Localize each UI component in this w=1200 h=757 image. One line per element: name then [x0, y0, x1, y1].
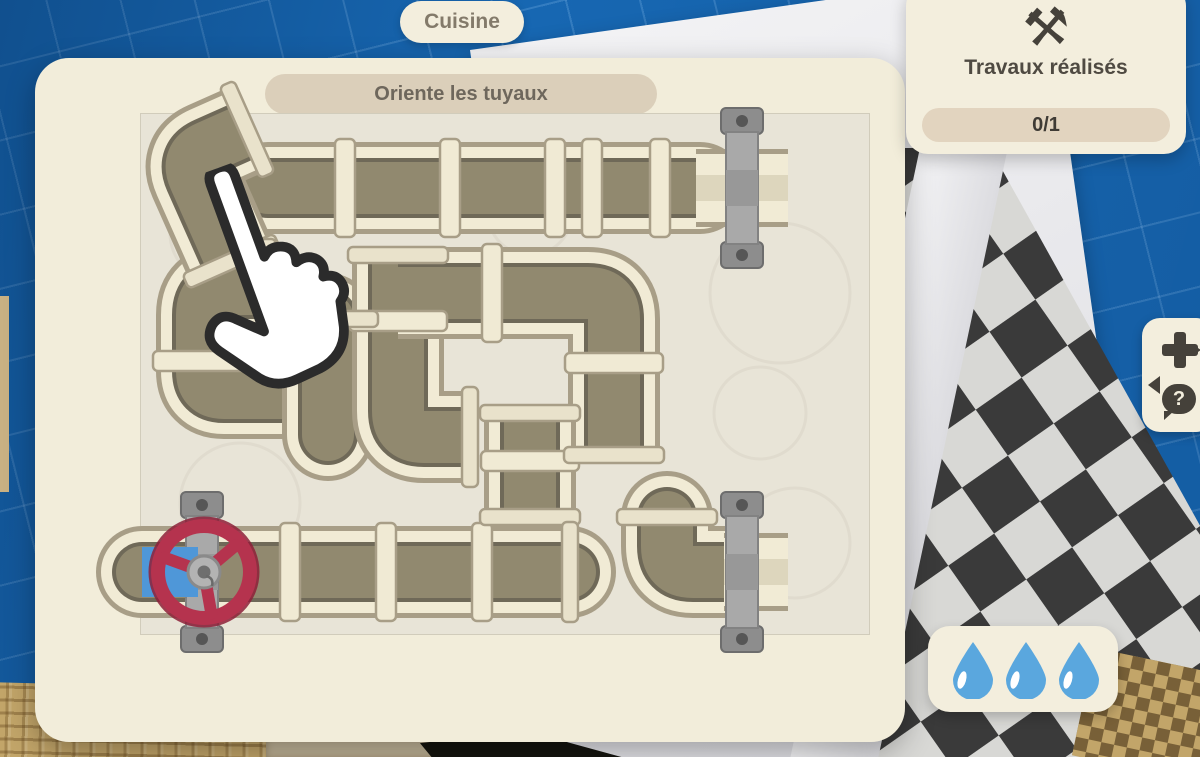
works-label: Travaux réalisés	[906, 56, 1186, 80]
puzzle-title-pill: Oriente les tuyaux	[265, 74, 657, 114]
collapse-arrow-icon[interactable]	[1148, 376, 1160, 394]
water-drops-panel	[928, 626, 1118, 712]
puzzle-panel: Oriente les tuyaux	[35, 58, 905, 742]
works-count: 0/1	[1032, 114, 1060, 137]
help-glyph: ?	[1173, 388, 1185, 411]
room-label-pill: Cuisine	[400, 1, 524, 43]
wall-clamp	[721, 492, 763, 652]
game-screen: Oriente les tuyaux Cuisine ⚒ Travaux réa…	[0, 0, 1200, 757]
small-arrow-icon	[1192, 344, 1200, 356]
pipe-board[interactable]	[140, 113, 870, 635]
crossed-hammers-icon: ⚒	[1021, 0, 1071, 55]
water-drop-icon	[1006, 642, 1046, 699]
works-panel: ⚒ Travaux réalisés 0/1	[906, 0, 1186, 154]
water-drop-icon	[1059, 642, 1099, 699]
puzzle-title: Oriente les tuyaux	[374, 83, 547, 106]
wall-clamp	[721, 108, 763, 268]
help-bubble-icon[interactable]: ?	[1162, 384, 1196, 414]
wicker-edge-strip	[0, 296, 9, 492]
water-drop-icon	[953, 642, 993, 699]
room-label: Cuisine	[424, 10, 500, 34]
works-count-pill: 0/1	[922, 108, 1170, 142]
side-drawer[interactable]: ?	[1142, 318, 1200, 432]
water-drops	[940, 639, 1106, 699]
